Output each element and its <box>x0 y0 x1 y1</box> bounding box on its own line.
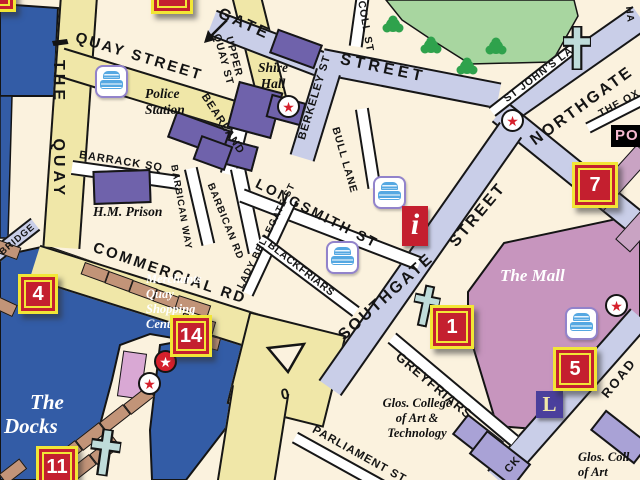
place-label-shire-hall: Shire Hall <box>258 60 288 92</box>
place-label-police-station: Police Station <box>145 86 185 118</box>
marker-5-number: 5 <box>569 358 580 381</box>
church-cross-icon <box>563 26 591 70</box>
marker-7-number: 7 <box>589 174 600 197</box>
car-icon <box>334 247 351 255</box>
post-office-label: PO <box>611 125 640 147</box>
place-label-hm-prison: H.M. Prison <box>93 204 162 220</box>
information-icon: i <box>402 206 428 246</box>
road-label-the-quay: THE QUAY <box>49 60 66 199</box>
parking-icon <box>326 241 359 274</box>
marker-7: 7 <box>572 162 618 208</box>
sight-star-icon: ★ <box>138 372 161 395</box>
marker-5: 5 <box>553 347 597 391</box>
marker-4: 4 <box>18 274 58 314</box>
car-body <box>570 322 593 331</box>
place-label-glos-college: Glos. College of Art & Technology <box>352 396 482 441</box>
parking-icon <box>373 176 406 209</box>
library-icon: L <box>536 391 563 418</box>
parking-icon <box>565 307 598 340</box>
sight-star-icon: ★ <box>277 95 300 118</box>
road-label-hare-la: HA <box>623 6 635 23</box>
car-body <box>331 256 354 265</box>
marker-14-number: 14 <box>180 325 202 348</box>
marker-1-number: 1 <box>446 316 457 339</box>
place-label-the-docks: The Docks <box>4 390 64 438</box>
water-quay-strip <box>0 96 12 238</box>
marker-partial-top-left <box>0 0 16 12</box>
car-icon <box>573 313 590 321</box>
marker-14: 14 <box>170 315 212 357</box>
marker-11: 11 <box>36 446 78 480</box>
parking-icon <box>95 65 128 98</box>
place-label-the-mall: The Mall <box>500 266 565 286</box>
car-body <box>378 191 401 200</box>
city-map: 0 QUAY STREET THE QUAY UPPER QUAY ST GAT… <box>0 0 640 480</box>
marker-partial-top-center <box>151 0 193 14</box>
sight-star-icon: ★ <box>605 294 628 317</box>
place-label-glos-college-2: Glos. Coll of Art <box>578 450 629 480</box>
car-icon <box>381 182 398 190</box>
car-icon <box>103 71 120 79</box>
park-area <box>386 0 578 64</box>
building-hm-prison <box>92 169 151 205</box>
marker-1: 1 <box>430 305 474 349</box>
marker-11-number: 11 <box>46 456 67 479</box>
marker-4-number: 4 <box>32 283 43 306</box>
car-body <box>100 80 123 89</box>
sight-star-icon: ★ <box>501 109 524 132</box>
